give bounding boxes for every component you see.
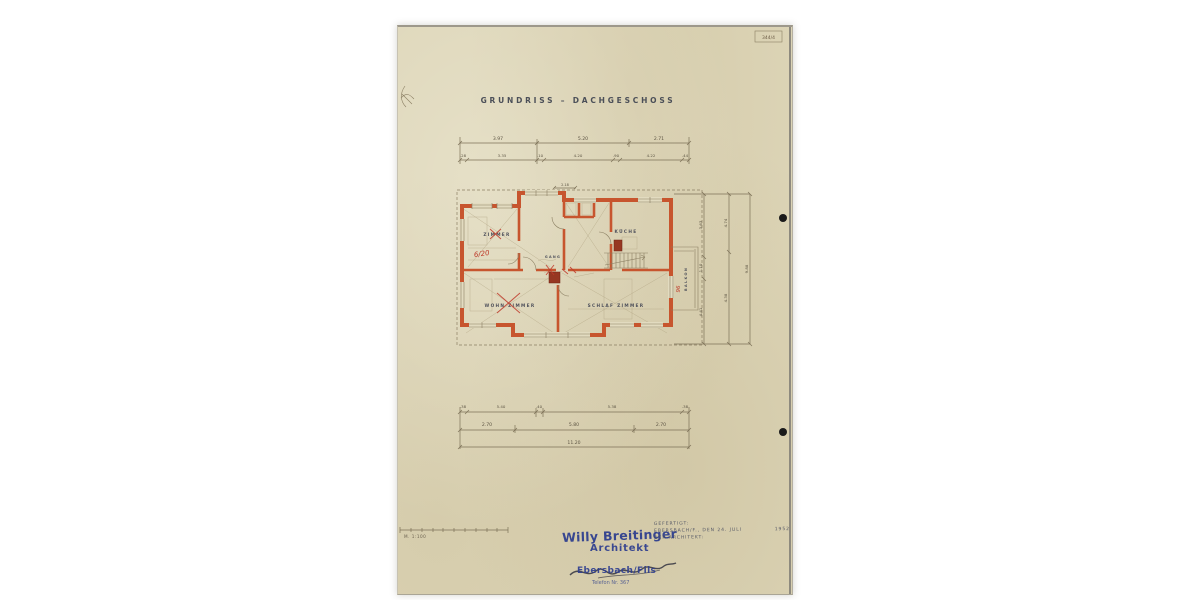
outer-walls	[462, 193, 671, 335]
margin-mark	[401, 86, 414, 107]
dim-label: 2.71	[654, 136, 664, 142]
dim-label: .10	[537, 153, 544, 158]
dim-label: 11.20	[567, 440, 580, 446]
dim-label: 4.41	[698, 307, 703, 316]
dim-label: 3.97	[493, 136, 503, 142]
dim-label: 5.20	[578, 136, 588, 142]
dimension-lines-top: 3.97 5.20 2.71 .28 3.35 .10 4.20 .90 4.2…	[458, 136, 691, 164]
page-right-edge	[789, 27, 791, 594]
stamp-architect-city: Ebersbach/Fils	[577, 566, 656, 576]
page-title: GRUNDRISS – DACHGESCHOSS	[481, 96, 676, 105]
room-label-schlafzimmer: SCHLAF ZIMMER	[588, 303, 645, 309]
dim-label: .40	[536, 404, 543, 409]
red-note-fraction: 6/20	[473, 249, 490, 259]
dim-label: 9.88	[744, 264, 749, 273]
balcony: BALKON 96	[671, 247, 698, 310]
punch-hole-bottom	[779, 428, 787, 436]
dim-label: 5.80	[569, 422, 579, 428]
dim-label: 4.22	[647, 153, 656, 158]
dim-label: 5.40	[497, 404, 506, 409]
scale-label: M. 1:100	[404, 534, 426, 539]
dimension-small-top: 2.18	[553, 183, 577, 189]
sheet-number-box: 344/4	[755, 31, 782, 42]
dim-label: .44	[682, 153, 689, 158]
dim-label: 1.10	[698, 263, 703, 272]
dim-label: .90	[613, 153, 620, 158]
stamp-architect-role: Architekt	[590, 543, 649, 554]
certification-year: 1952	[775, 526, 790, 533]
dim-label: .28	[460, 153, 467, 158]
dim-label: 4.38	[723, 293, 728, 302]
room-label-kueche: KÜCHE	[615, 228, 638, 235]
drawing-sheet: 344/4 GRUNDRISS – DACHGESCHOSS 3.97 5.20…	[397, 25, 793, 595]
dim-label: 5.38	[608, 404, 617, 409]
sheet-number: 344/4	[762, 35, 775, 41]
punch-hole-top	[779, 214, 787, 222]
scale-bar: M. 1:100	[400, 527, 508, 539]
red-note-balcony: 96	[676, 285, 682, 292]
dim-label: 2.70	[482, 422, 492, 428]
dim-label: 3.35	[498, 153, 507, 158]
dimension-lines-bottom: .38 5.40 .40 5.38 .38 2.70 5.80 2.70 11.…	[458, 404, 691, 449]
dim-label: 2.70	[656, 422, 666, 428]
interior-walls	[462, 193, 671, 335]
dim-label: 4.74	[723, 218, 728, 227]
dim-label: 4.20	[574, 153, 583, 158]
room-label-gang: GANG	[545, 255, 561, 259]
dim-label: .38	[460, 404, 467, 409]
dim-label: .38	[682, 404, 689, 409]
windows	[459, 190, 674, 338]
scan-background: 344/4 GRUNDRISS – DACHGESCHOSS 3.97 5.20…	[0, 0, 1200, 600]
stamp-architect-phone: Telefon Nr. 367	[592, 580, 629, 586]
certification-block: GEFERTIGT: EBERSBACH/F., DEN 24. JULI 19…	[654, 519, 790, 542]
floorplan-drawing: 344/4 GRUNDRISS – DACHGESCHOSS 3.97 5.20…	[398, 27, 792, 594]
dim-label: 3.63	[698, 220, 703, 229]
room-label-balkon: BALKON	[684, 267, 688, 291]
dim-label: 2.18	[561, 183, 569, 187]
